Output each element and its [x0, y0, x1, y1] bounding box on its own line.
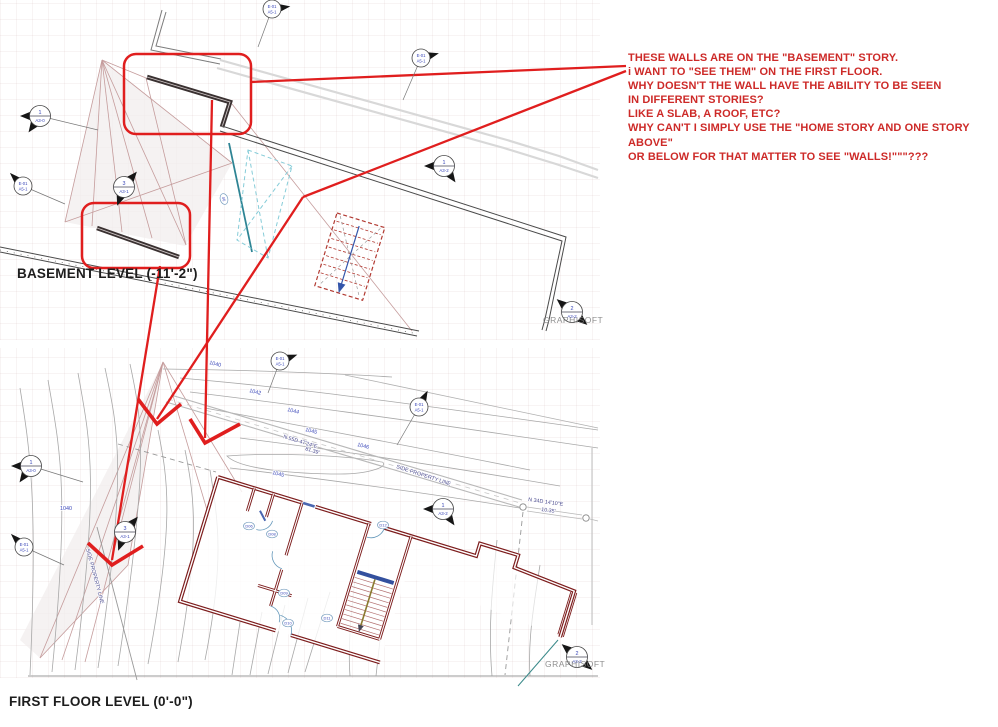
svg-text:A5-1: A5-1 [417, 59, 427, 64]
svg-text:2: 2 [576, 651, 579, 657]
question-note-line: WHY CAN'T I SIMPLY USE THE "HOME STORY A… [628, 121, 994, 149]
red-arrowhead-2 [190, 419, 240, 443]
reference-marker: E-01A5-1 [258, 0, 290, 47]
svg-text:D06: D06 [245, 524, 253, 529]
door-tag: D11 [322, 614, 333, 622]
basement-plan [0, 10, 598, 336]
svg-text:D11: D11 [323, 616, 331, 621]
svg-text:A5-1: A5-1 [20, 548, 30, 553]
first-floor-building [180, 465, 582, 712]
svg-text:D09: D09 [280, 591, 288, 596]
question-note-line: IN DIFFERENT STORIES? [628, 93, 994, 107]
graphisoft-watermark: GRAPHISOFT [545, 659, 605, 669]
svg-text:A5-1: A5-1 [415, 408, 425, 413]
reference-marker: E-01A5-1 [397, 391, 428, 445]
svg-text:A3-2: A3-2 [438, 511, 448, 516]
survey-label: N 34D 14'10"E [528, 497, 564, 508]
svg-text:A3-2: A3-2 [439, 168, 449, 173]
question-note-line: THESE WALLS ARE ON THE "BASEMENT" STORY. [628, 51, 994, 65]
door-tag: D08 [267, 530, 278, 538]
red-leader-line-2 [303, 71, 626, 197]
contour-label: 1040 [209, 360, 222, 369]
basement-upper-wall [151, 10, 221, 64]
svg-text:A3-1: A3-1 [119, 189, 129, 194]
basement-level-label: BASEMENT LEVEL (-11'-2") [17, 266, 198, 281]
door-tag: D12 [378, 521, 389, 529]
section-marker: 1A3-2 [424, 156, 455, 183]
graphisoft-watermark: GRAPHISOFT [543, 315, 603, 325]
section-marker: 1A3-0 [11, 456, 83, 483]
question-note-line: LIKE A SLAB, A ROOF, ETC? [628, 107, 994, 121]
svg-text:A3-1: A3-1 [120, 534, 130, 539]
question-note-line: WHY DOESN'T THE WALL HAVE THE ABILITY TO… [628, 79, 994, 93]
svg-text:A3-0: A3-0 [26, 468, 36, 473]
svg-text:1: 1 [443, 160, 446, 166]
svg-text:E-01: E-01 [417, 53, 427, 58]
door-tag: D09 [279, 589, 290, 597]
svg-text:2: 2 [571, 306, 574, 312]
contour-label: 1046 [357, 442, 370, 451]
svg-text:1: 1 [442, 503, 445, 509]
question-note: THESE WALLS ARE ON THE "BASEMENT" STORY.… [628, 51, 994, 164]
survey-label: 10.35' [541, 507, 556, 515]
section-marker: 1A3-2 [423, 499, 454, 526]
door-tag: D10 [283, 619, 294, 627]
svg-text:A3-0: A3-0 [35, 118, 45, 123]
svg-text:A5-1: A5-1 [268, 10, 278, 15]
svg-text:E-01: E-01 [268, 4, 278, 9]
svg-text:E-01: E-01 [19, 181, 29, 186]
contour-label: 1042 [249, 388, 262, 397]
svg-text:1: 1 [30, 460, 33, 466]
contour-label: 1044 [287, 407, 300, 416]
svg-text:1: 1 [39, 110, 42, 116]
reference-marker: E-01A5-1 [11, 534, 64, 565]
svg-text:E-01: E-01 [415, 402, 425, 407]
first-floor-level-label: FIRST FLOOR LEVEL (0'-0") [9, 694, 193, 709]
svg-text:3: 3 [123, 181, 126, 187]
contour-label: 1040 [60, 506, 72, 512]
basement-road [217, 60, 598, 178]
svg-text:3: 3 [124, 526, 127, 532]
red-leader-line-1 [251, 66, 626, 82]
svg-text:D10: D10 [284, 621, 292, 626]
first-floor-plan [20, 362, 598, 712]
svg-text:E-01: E-01 [276, 356, 286, 361]
svg-text:A5-1: A5-1 [276, 362, 286, 367]
property-line-upper [345, 375, 598, 428]
reference-marker: E-01A5-1 [10, 173, 65, 204]
svg-text:A5-1: A5-1 [19, 187, 29, 192]
basement-stair [315, 213, 385, 300]
door-tag: 06 [219, 193, 229, 206]
svg-text:E-01: E-01 [20, 542, 30, 547]
svg-text:D08: D08 [268, 532, 276, 537]
screenshot-root: { "question_note": { "color": "#cd2a28",… [0, 0, 998, 727]
basement-dashed-opening [237, 150, 292, 258]
question-note-line: i WANT TO "SEE THEM" ON THE FIRST FLOOR. [628, 65, 994, 79]
svg-text:D12: D12 [379, 523, 387, 528]
question-note-line: OR BELOW FOR THAT MATTER TO SEE "WALLS!"… [628, 150, 994, 164]
door-tag: D06 [244, 522, 255, 530]
drawing-canvas: 1A3-03A3-11A3-22A3-2E-01A5-1E-01A5-1E-01… [0, 0, 998, 727]
